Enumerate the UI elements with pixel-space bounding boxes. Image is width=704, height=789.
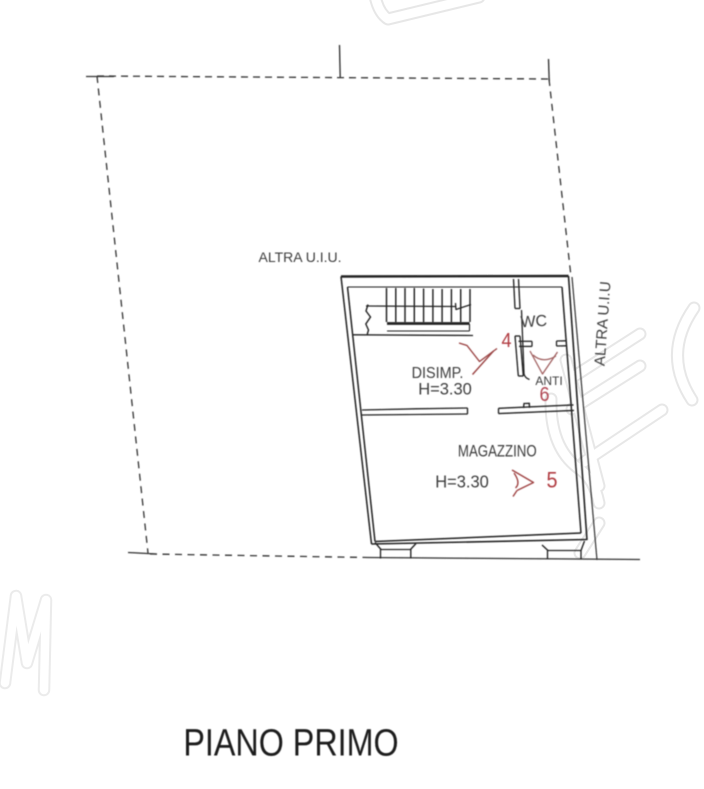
svg-text:ALTRA U.I.U.: ALTRA U.I.U. (259, 249, 342, 265)
svg-text:H=3.30: H=3.30 (435, 472, 488, 492)
svg-text:MAGAZZINO: MAGAZZINO (458, 442, 537, 461)
svg-text:4: 4 (501, 330, 511, 352)
svg-text:5: 5 (546, 468, 557, 492)
svg-text:PIANO PRIMO: PIANO PRIMO (183, 722, 398, 764)
svg-text:6: 6 (539, 384, 549, 406)
svg-text:WC: WC (520, 313, 548, 331)
svg-text:H=3.30: H=3.30 (418, 379, 472, 398)
